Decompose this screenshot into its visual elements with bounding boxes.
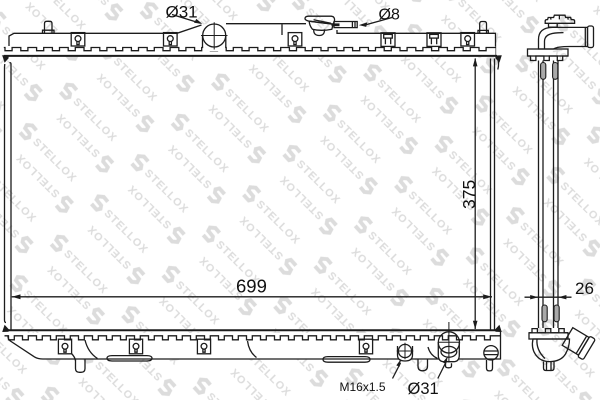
svg-text:375: 375 <box>459 180 479 209</box>
svg-text:26: 26 <box>575 279 594 298</box>
svg-text:Ø31: Ø31 <box>408 380 439 398</box>
svg-text:Ø31: Ø31 <box>166 3 198 22</box>
svg-text:Ø8: Ø8 <box>379 7 400 24</box>
svg-text:699: 699 <box>236 276 267 297</box>
svg-text:M16x1.5: M16x1.5 <box>340 380 386 394</box>
